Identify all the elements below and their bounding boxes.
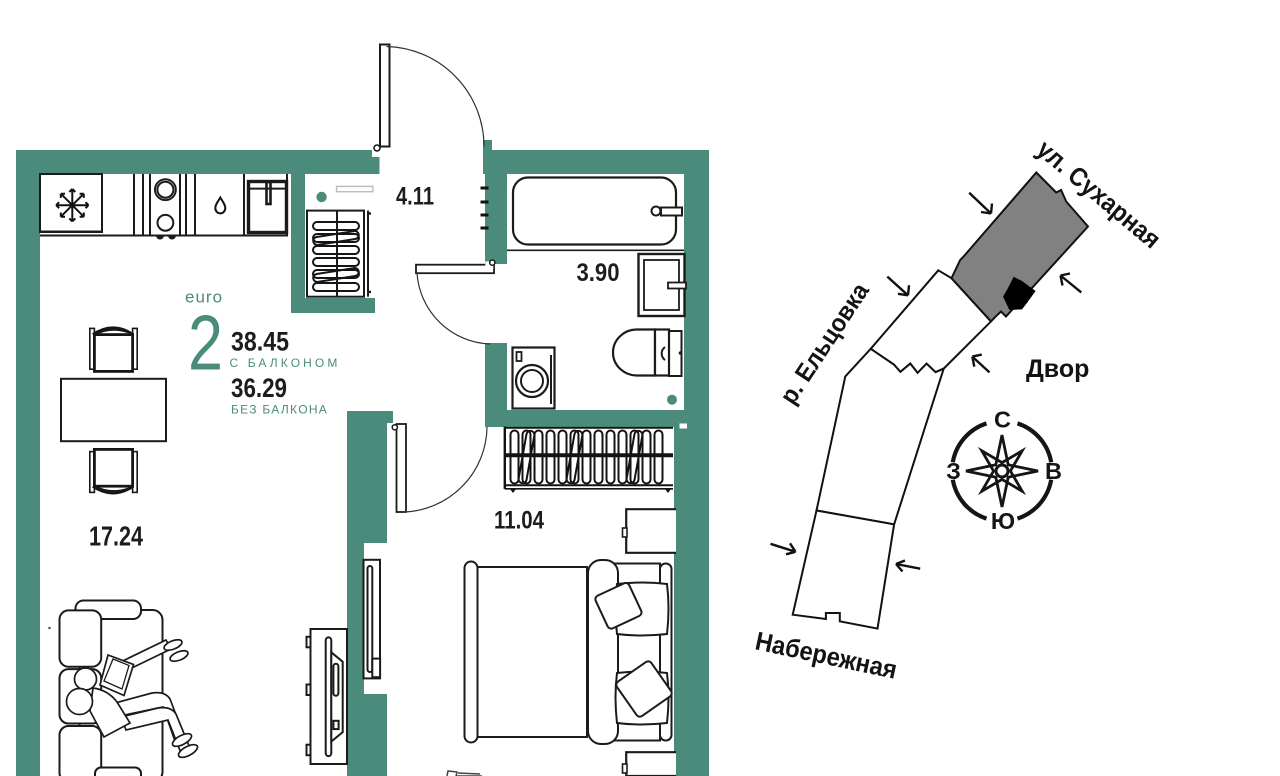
svg-text:Двор: Двор (1026, 355, 1089, 383)
svg-text:БЕЗ БАЛКОНА: БЕЗ БАЛКОНА (231, 403, 328, 417)
svg-text:2: 2 (188, 299, 223, 387)
svg-text:В: В (1045, 458, 1062, 484)
svg-text:36.29: 36.29 (231, 373, 287, 403)
svg-text:4.11: 4.11 (396, 183, 434, 211)
svg-text:З: З (946, 458, 961, 484)
svg-text:38.45: 38.45 (231, 326, 289, 356)
svg-text:3.90: 3.90 (577, 259, 620, 287)
svg-text:17.24: 17.24 (89, 521, 144, 552)
svg-text:Ю: Ю (991, 508, 1015, 534)
svg-text:11.04: 11.04 (494, 507, 544, 535)
svg-text:С БАЛКОНОМ: С БАЛКОНОМ (230, 356, 341, 370)
svg-text:С: С (994, 407, 1011, 433)
